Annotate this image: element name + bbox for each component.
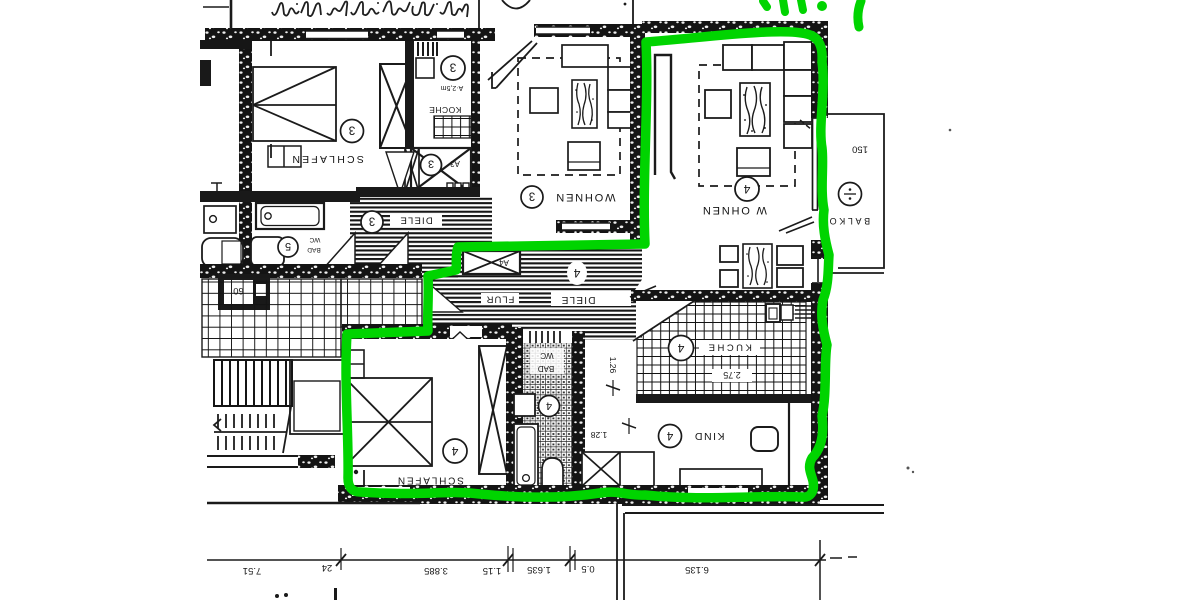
svg-text:150: 150 [852, 144, 868, 155]
svg-text:A·2,5m: A·2,5m [441, 84, 464, 91]
svg-text:4: 4 [546, 400, 552, 412]
svg-text:3: 3 [428, 158, 434, 170]
svg-text:1.15: 1.15 [483, 565, 502, 576]
svg-text:3: 3 [449, 61, 456, 75]
svg-text:A3: A3 [450, 159, 460, 168]
svg-text:3.885: 3.885 [424, 565, 448, 576]
svg-text:4: 4 [573, 266, 580, 280]
svg-text:KOCHE: KOCHE [429, 105, 462, 115]
svg-text:DIELE: DIELE [561, 294, 596, 305]
svg-text:24: 24 [322, 562, 333, 573]
svg-text:A4: A4 [499, 258, 509, 267]
svg-text:1.635: 1.635 [527, 564, 551, 575]
svg-text:DIELE: DIELE [399, 215, 432, 226]
svg-text:WOHNEN: WOHNEN [555, 191, 616, 203]
svg-text:6.135: 6.135 [685, 564, 709, 575]
svg-text:KIND: KIND [693, 430, 724, 442]
svg-text:4: 4 [666, 429, 673, 441]
svg-text:4: 4 [451, 444, 458, 458]
svg-text:3: 3 [348, 124, 355, 138]
svg-text:3: 3 [529, 190, 535, 202]
svg-text:1.28: 1.28 [590, 430, 607, 440]
svg-text:W OHNEN: W OHNEN [701, 204, 767, 216]
svg-text:SCHLAFEN: SCHLAFEN [396, 475, 464, 486]
svg-text:1.26: 1.26 [608, 357, 618, 374]
svg-text:4: 4 [677, 341, 684, 355]
svg-text:0.5: 0.5 [581, 563, 594, 574]
svg-text:WC: WC [540, 351, 554, 360]
svg-text:7.51: 7.51 [243, 565, 262, 576]
svg-text:BAD: BAD [307, 246, 321, 253]
svg-text:5: 5 [285, 240, 291, 252]
svg-text:3: 3 [369, 215, 375, 227]
svg-text:4: 4 [743, 182, 750, 196]
svg-text:KUCHE: KUCHE [706, 342, 752, 353]
svg-text:SCHLAFEN: SCHLAFEN [290, 153, 364, 165]
svg-text:WC: WC [309, 236, 320, 243]
svg-text:FLUR: FLUR [486, 294, 515, 305]
svg-text:BAD: BAD [538, 364, 555, 373]
svg-text:2.75: 2.75 [723, 370, 741, 380]
